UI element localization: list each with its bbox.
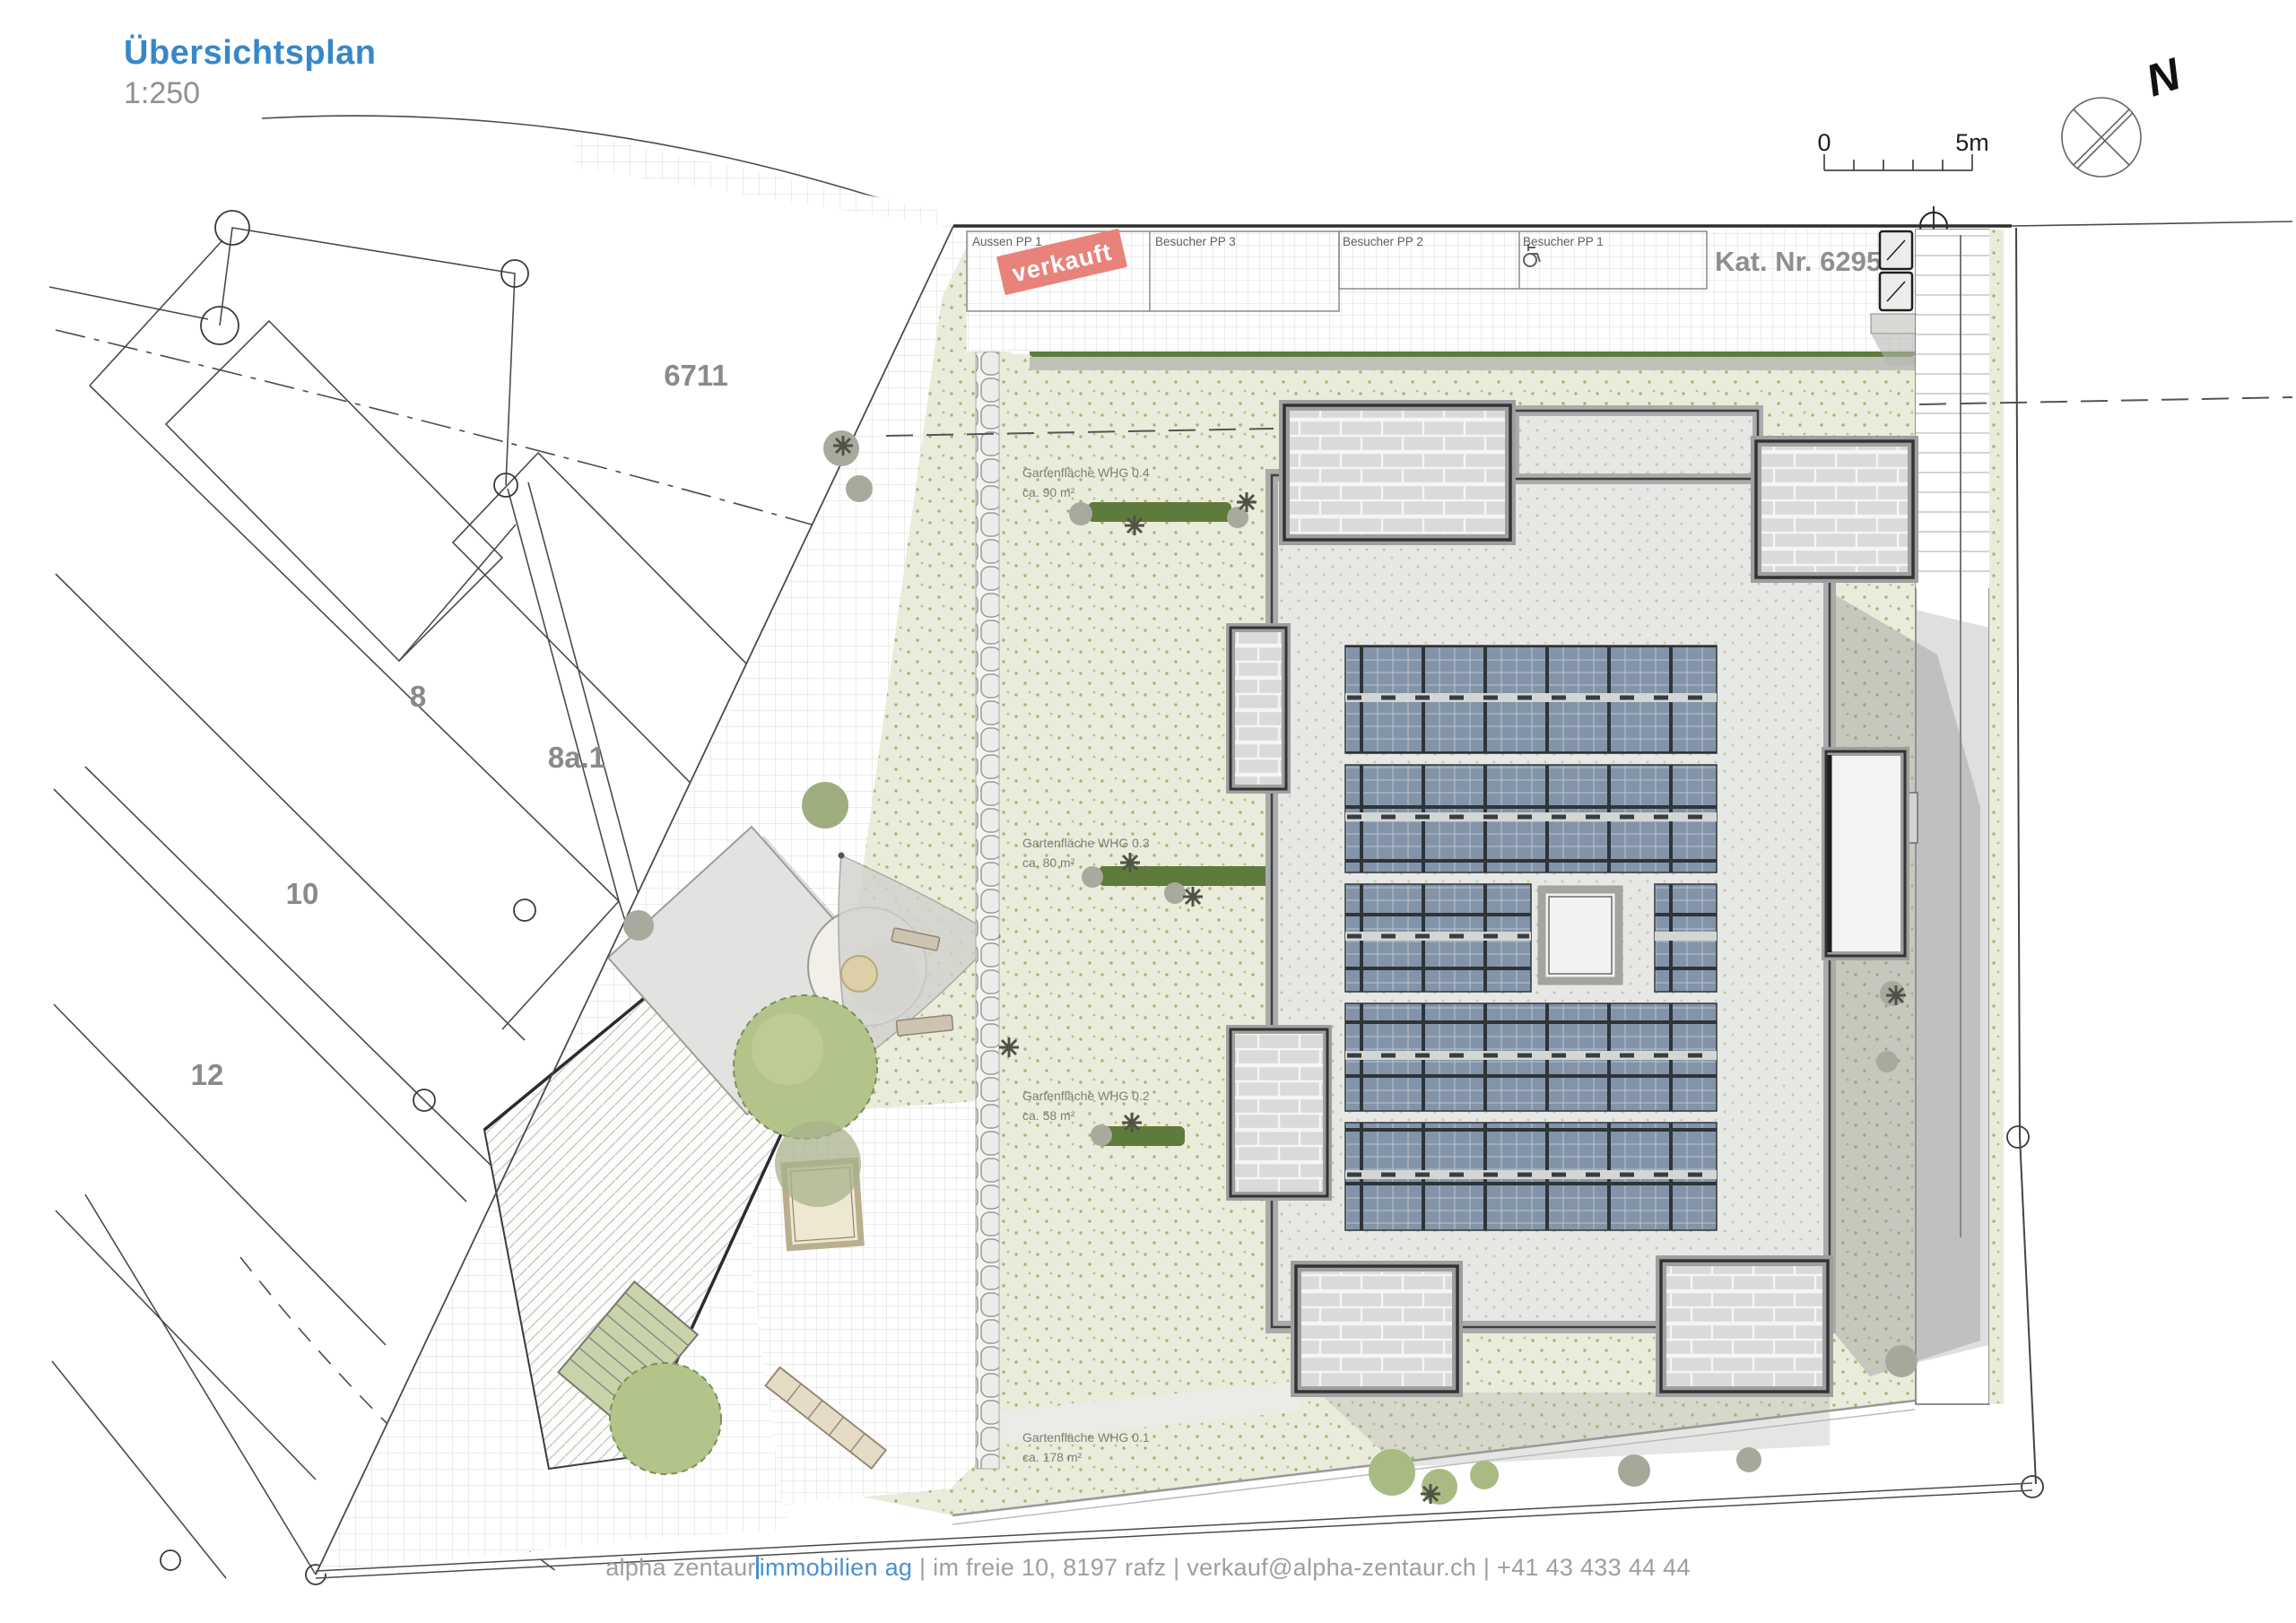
stall-label-besucher-pp3: Besucher PP 3: [1155, 235, 1236, 248]
parcel-label-6711: 6711: [664, 359, 728, 392]
sidewalk-top: [574, 133, 952, 228]
footer-contact-bar: alpha zentaurimmobilien ag | im freie 10…: [0, 1554, 2296, 1582]
stall-label-besucher-pp2: Besucher PP 2: [1343, 235, 1423, 248]
parcel-label-12: 12: [191, 1058, 224, 1091]
north-arrow-icon: [2062, 98, 2141, 177]
footer-company: alpha zentaur: [605, 1554, 756, 1581]
hedge-whg04: [1088, 502, 1231, 522]
footer-brand: immobilien ag: [760, 1554, 912, 1581]
roof-skylight: [1542, 890, 1619, 981]
scale-bar-5m: 5m: [1955, 129, 1989, 156]
north-label: N: [2140, 48, 2187, 107]
garden-label-whg02-name: Gartenfläche WHG 0.2: [1022, 1089, 1150, 1103]
round-rug: [841, 956, 877, 992]
gravel-strip: [1030, 357, 1915, 370]
cadastre-number: Kat. Nr. 6295: [1715, 246, 1882, 277]
footer-email: verkauf@alpha-zentaur.ch: [1187, 1554, 1476, 1581]
parcel-label-10: 10: [286, 877, 319, 910]
footer-sep: |: [912, 1554, 933, 1581]
sail-post: [839, 853, 845, 859]
garden-label-whg04-area: ca. 90 m²: [1022, 485, 1075, 499]
apartment-building: [1231, 405, 1980, 1467]
garden-label-whg01-name: Gartenfläche WHG 0.1: [1022, 1430, 1150, 1445]
garden-label-whg04-name: Gartenfläche WHG 0.4: [1022, 465, 1150, 480]
garden-label-whg02-area: ca. 58 m²: [1022, 1108, 1075, 1123]
site-plan-drawing: 6711 8a.1 8 10 12 Aussen PP 1 Besucher P…: [0, 0, 2296, 1623]
parcel-label-8: 8: [410, 680, 426, 713]
brand-divider: [756, 1557, 759, 1579]
garden-label-whg01-area: ca. 178 m²: [1022, 1450, 1082, 1464]
footer-sep: |: [1166, 1554, 1187, 1581]
scale-bar-zero: 0: [1817, 129, 1831, 156]
footer-sep: |: [1476, 1554, 1497, 1581]
stone-retaining-wall: [976, 352, 999, 1469]
garden-label-whg03-area: ca. 80 m²: [1022, 855, 1075, 870]
garden-label-whg03-name: Gartenfläche WHG 0.3: [1022, 836, 1150, 850]
parcel-label-8a1: 8a.1: [548, 741, 605, 774]
stall-label-aussen-pp1: Aussen PP 1: [972, 235, 1042, 248]
footer-address: im freie 10, 8197 rafz: [933, 1554, 1166, 1581]
footer-phone: +41 43 433 44 44: [1497, 1554, 1691, 1581]
stall-label-besucher-pp1: Besucher PP 1: [1523, 235, 1604, 248]
solar-panel-array: [1345, 646, 1717, 1230]
scale-bar: [1824, 154, 1972, 170]
